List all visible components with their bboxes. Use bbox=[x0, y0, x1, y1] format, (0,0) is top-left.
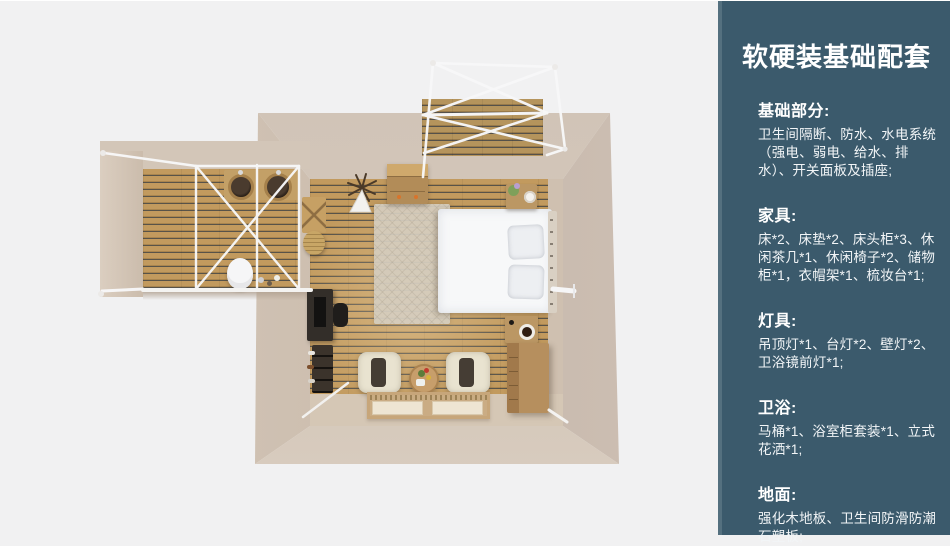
monitor-icon bbox=[314, 297, 326, 327]
section-heading: 家具: bbox=[758, 202, 938, 226]
desk-chair bbox=[333, 303, 348, 327]
cabinet-top bbox=[387, 164, 428, 177]
pillow bbox=[507, 224, 545, 260]
cabinet-knob bbox=[414, 195, 418, 199]
frame-joint-icon bbox=[552, 64, 558, 70]
section-flooring: 地面: 强化木地板、卫生间防滑防潮石塑板; bbox=[758, 481, 938, 546]
round-tea-table bbox=[409, 364, 439, 394]
lounge-chair-right bbox=[446, 352, 490, 393]
section-bathroom: 卫浴: 马桶*1、浴室柜套装*1、立式花洒*1; bbox=[758, 394, 938, 459]
section-body: 卫生间隔断、防水、水电系统（强电、弱电、给水、排水）、开关面板及插座; bbox=[758, 126, 938, 180]
flower-icon bbox=[426, 375, 431, 380]
bath-accessory bbox=[267, 281, 272, 286]
bath-accessory bbox=[274, 275, 280, 281]
sidebar-title: 软硬装基础配套 bbox=[742, 41, 936, 73]
faucet-icon bbox=[238, 170, 243, 175]
flower-icon bbox=[424, 368, 429, 373]
slide: 软硬装基础配套 基础部分: 卫生间隔断、防水、水电系统（强电、弱电、给水、排水）… bbox=[0, 1, 950, 535]
section-body: 吊顶灯*1、台灯*2、壁灯*2、卫浴镜前灯*1; bbox=[758, 336, 938, 372]
info-sidebar: 软硬装基础配套 基础部分: 卫生间隔断、防水、水电系统（强电、弱电、给水、排水）… bbox=[718, 1, 950, 535]
annex-edge-shadow bbox=[143, 290, 310, 300]
dresser bbox=[507, 343, 549, 413]
storage-cabinet bbox=[387, 164, 428, 204]
double-sink-vanity bbox=[224, 170, 300, 200]
section-body: 床*2、床垫*2、床头柜*3、休闲茶几*1、休闲椅子*2、储物柜*1，衣帽架*1… bbox=[758, 231, 938, 285]
section-furniture: 家具: 床*2、床垫*2、床头柜*3、休闲茶几*1、休闲椅子*2、储物柜*1，衣… bbox=[758, 202, 938, 285]
mat-border-band bbox=[370, 395, 487, 400]
section-body: 马桶*1、浴室柜套装*1、立式花洒*1; bbox=[758, 423, 938, 459]
nightstand-top bbox=[506, 184, 537, 209]
sink-left-icon bbox=[228, 174, 254, 200]
frame-joint-icon bbox=[430, 60, 436, 66]
basket bbox=[303, 231, 325, 255]
drawer-seam bbox=[509, 357, 518, 358]
paper-icon bbox=[416, 379, 425, 386]
drawer-seam bbox=[509, 385, 518, 386]
coat-rack bbox=[302, 197, 326, 233]
chair-cushion bbox=[371, 358, 386, 387]
toilet-icon bbox=[227, 258, 253, 289]
bed-headboard bbox=[548, 211, 557, 313]
cabinet-seam bbox=[390, 191, 425, 192]
shoe-icon bbox=[307, 365, 314, 369]
section-heading: 地面: bbox=[758, 481, 938, 505]
shoe-icon bbox=[308, 351, 315, 355]
nightstand-bottom bbox=[505, 316, 538, 343]
faucet-icon bbox=[276, 170, 281, 175]
section-body: 强化木地板、卫生间防滑防潮石塑板; bbox=[758, 510, 938, 546]
balcony-deck bbox=[422, 99, 543, 156]
sink-right-icon bbox=[264, 173, 292, 201]
section-lighting: 灯具: 吊顶灯*1、台灯*2、壁灯*2、卫浴镜前灯*1; bbox=[758, 307, 938, 372]
bath-accessory bbox=[258, 277, 264, 283]
section-heading: 基础部分: bbox=[758, 97, 938, 121]
cup-icon bbox=[524, 191, 536, 203]
trinket bbox=[509, 320, 514, 325]
shoe-icon bbox=[308, 379, 315, 383]
annex-left-wall bbox=[100, 151, 143, 297]
mat-panel bbox=[432, 401, 483, 415]
section-basics: 基础部分: 卫生间隔断、防水、水电系统（强电、弱电、给水、排水）、开关面板及插座… bbox=[758, 97, 938, 180]
chair-cushion bbox=[459, 358, 474, 387]
floor-mats bbox=[367, 392, 490, 419]
floorplan-render bbox=[0, 1, 718, 535]
desk bbox=[307, 289, 333, 341]
flower-icon bbox=[514, 183, 520, 189]
double-bed bbox=[438, 209, 552, 313]
lounge-chair-left bbox=[358, 352, 401, 393]
section-heading: 灯具: bbox=[758, 307, 938, 331]
section-heading: 卫浴: bbox=[758, 394, 938, 418]
coffee-cup-icon bbox=[522, 327, 532, 337]
cabinet-knob bbox=[397, 195, 401, 199]
drawer-seam bbox=[509, 371, 518, 372]
mat-panel bbox=[372, 401, 423, 415]
drawer-seam bbox=[509, 399, 518, 400]
pillow bbox=[507, 264, 544, 299]
shoe-rack bbox=[312, 345, 333, 393]
